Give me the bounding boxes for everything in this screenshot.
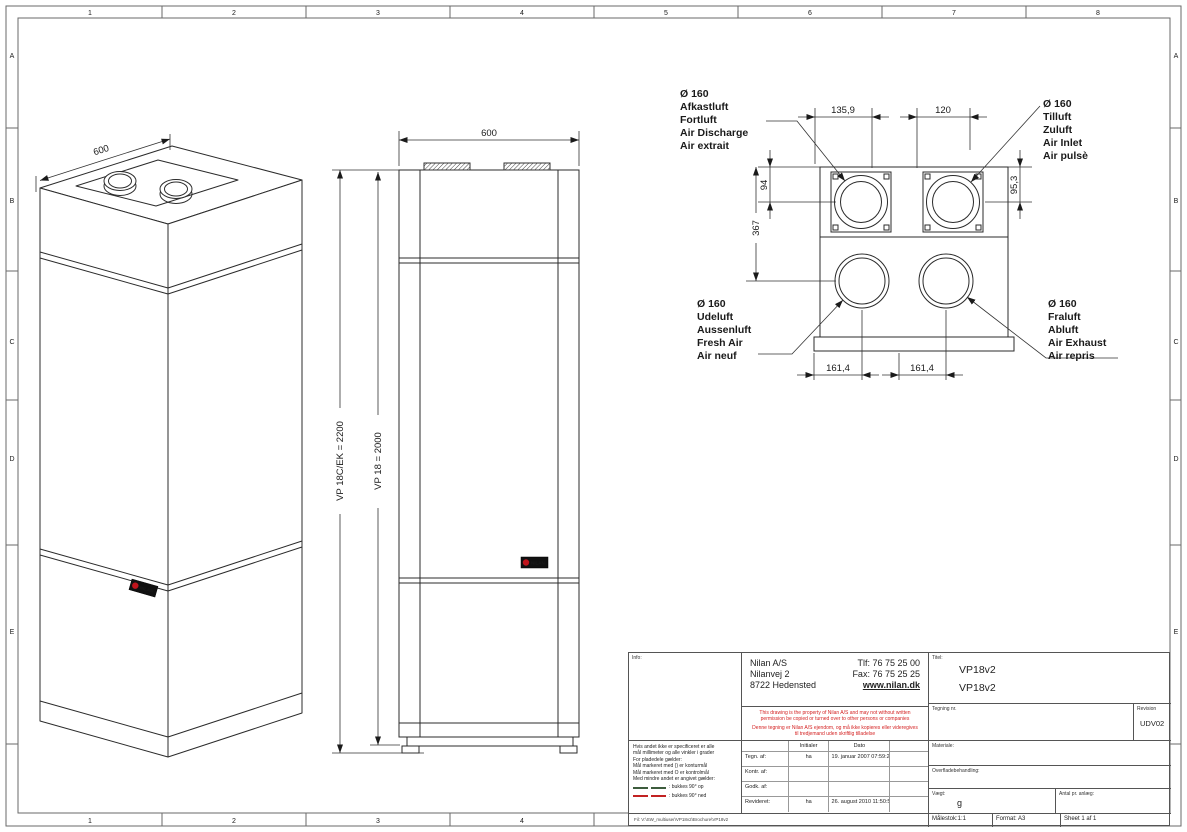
port-label-line: Afkastluft [680, 101, 729, 113]
front-width-dim-text: 600 [481, 128, 497, 139]
title-block: Info: Nilan A/S Nilanvej 2 8722 Hedenste… [628, 652, 1170, 826]
table-row: Kontr. af: [742, 767, 928, 782]
disclaimer-en: This drawing is the property of Nilan A/… [750, 710, 920, 722]
port-label-line: Udeluft [697, 311, 734, 323]
grid-row-label: B [1174, 198, 1179, 205]
grid-col-label: 4 [520, 818, 524, 825]
info-label: Info: [629, 653, 741, 661]
port-label-line: Fortluft [680, 114, 717, 126]
grid-row-label: A [1174, 53, 1179, 60]
overflade-cell: Overfladebehandling: [929, 766, 1171, 789]
port-label-exhaust: Ø 160 Fraluft Abluft Air Exhaust Air rep… [1048, 298, 1107, 362]
grid-col-label: 2 [232, 818, 236, 825]
row-date [829, 767, 891, 782]
row-initials [789, 782, 829, 797]
title-line2: VP18v2 [959, 682, 996, 694]
port-label-line: Air Inlet [1043, 137, 1083, 149]
row-label: Revideret: [742, 797, 789, 812]
table-row: Revideret: ha 26. august 2010 11:50:56 [742, 797, 928, 812]
port-label-fresh: Ø 160 Udeluft Aussenluft Fresh Air Air n… [697, 298, 752, 362]
format-cell: Format: A3 [993, 814, 1061, 827]
antal-cell: Antal pr. anlæg: [1056, 789, 1171, 814]
company-website-link[interactable]: www.nilan.dk [852, 680, 920, 691]
revision-cell: Revision UDV02 [1134, 704, 1171, 741]
row-extra [890, 782, 928, 797]
table-header-dato: Dato [829, 741, 891, 752]
dim-text: 95,3 [1009, 176, 1020, 195]
port-label-line: Ø 160 [1043, 98, 1072, 110]
revision-value: UDV02 [1140, 719, 1164, 728]
company-name: Nilan A/S [750, 658, 816, 669]
port-label-line: Aussenluft [697, 324, 752, 336]
dim-text: 135,9 [831, 105, 855, 116]
tegning-label: Tegning nr. [929, 704, 1133, 712]
company-city: 8722 Hedensted [750, 680, 816, 691]
grid-col-label: 1 [88, 10, 92, 17]
nilan-logo: NILAN [521, 557, 548, 568]
table-row: Godk. af: [742, 782, 928, 797]
port-label-inlet: Ø 160 Tilluft Zuluft Air Inlet Air pulsè [1043, 98, 1088, 162]
front-height-dim-outer-text: VP 18C/EK = 2200 [335, 421, 346, 501]
port-label-line: Ø 160 [697, 298, 726, 310]
antal-label: Antal pr. anlæg: [1056, 789, 1171, 797]
row-extra [890, 767, 928, 782]
bend-up-line-swatch [633, 787, 648, 789]
row-label: Kontr. af: [742, 767, 789, 782]
dim-text: 161,4 [910, 363, 934, 374]
port-label-line: Air extrait [680, 140, 730, 152]
port-label-line: Zuluft [1043, 124, 1073, 136]
port-label-line: Fresh Air [697, 337, 743, 349]
bend-down-legend: : bukkes 90° ned [633, 793, 739, 799]
front-collar-strip [424, 163, 470, 170]
vaegt-value: g [957, 798, 962, 808]
revision-label: Revision [1134, 704, 1171, 712]
grid-row-label: B [10, 198, 15, 205]
grid-col-label: 7 [952, 10, 956, 17]
file-path: Fil: V:\SW_multiuser\VP18v2\Brochure\VP1… [629, 814, 929, 827]
bend-up-legend: : bukkes 90° op [633, 784, 739, 790]
company-street: Nilanvej 2 [750, 669, 816, 680]
maalestok-cell: Målestok:1:1 [929, 814, 993, 827]
iso-width-dim-text: 600 [92, 143, 110, 158]
table-header-initialer: Initialer [789, 741, 829, 752]
row-initials: ha [789, 752, 829, 767]
grid-row-label: A [10, 53, 15, 60]
port-label-line: Ø 160 [680, 88, 709, 100]
row-date [829, 782, 891, 797]
front-view [399, 163, 579, 753]
front-collar-strip [504, 163, 550, 170]
materiale-cell: Materiale: [929, 741, 1171, 766]
port-label-line: Air pulsè [1043, 150, 1088, 162]
row-date: 26. august 2010 11:50:56 [829, 797, 891, 812]
note-line: Med mindre andet er angivet gælder: [633, 776, 739, 782]
front-height-dim-inner-text: VP 18 = 2000 [373, 432, 384, 490]
port-label-line: Air Discharge [680, 127, 748, 139]
grid-row-label: C [9, 339, 14, 346]
grid-row-label: E [10, 629, 15, 636]
grid-col-label: 8 [1096, 10, 1100, 17]
table-header-empty [890, 741, 928, 752]
grid-col-label: 1 [88, 818, 92, 825]
materiale-label: Materiale: [929, 741, 1171, 749]
drawing-sheet: 1 2 3 4 5 6 7 8 1 2 3 4 A B C D E A B C … [0, 0, 1187, 832]
bend-down-line-swatch [633, 795, 648, 797]
grid-col-label: 3 [376, 818, 380, 825]
row-label: Tegn. af: [742, 752, 789, 767]
port-label-line: Air neuf [697, 350, 737, 362]
tegning-cell: Tegning nr. [929, 704, 1134, 741]
vaegt-label: Vægt: [929, 789, 1055, 797]
port-label-line: Air repris [1048, 350, 1095, 362]
notes-cell: Hvis andet ikke er specificeret er alle … [629, 741, 742, 814]
company-cell: Nilan A/S Nilanvej 2 8722 Hedensted Tlf:… [742, 653, 929, 707]
grid-col-label: 3 [376, 10, 380, 17]
disclaimer-da: Denne tegning er Nilan A/S ejendom, og m… [750, 725, 920, 737]
overflade-label: Overfladebehandling: [929, 766, 1171, 774]
grid-row-label: D [1173, 456, 1178, 463]
port-label-discharge: Ø 160 Afkastluft Fortluft Air Discharge … [680, 88, 748, 152]
company-phone: Tlf: 76 75 25 00 [852, 658, 920, 669]
grid-row-label: C [1173, 339, 1178, 346]
grid-col-label: 6 [808, 10, 812, 17]
grid-row-label: E [1174, 629, 1179, 636]
signature-table: Initialer Dato Tegn. af: ha 19. januar 2… [742, 741, 929, 814]
port-label-line: Tilluft [1043, 111, 1072, 123]
table-row: Tegn. af: ha 19. januar 2007 07:59:20 [742, 752, 928, 767]
grid-col-label: 2 [232, 10, 236, 17]
port-label-line: Ø 160 [1048, 298, 1077, 310]
grid-col-label: 5 [664, 10, 668, 17]
port-label-line: Air Exhaust [1048, 337, 1107, 349]
dim-text: 367 [751, 220, 762, 236]
title-line1: VP18v2 [959, 664, 996, 676]
isometric-view [40, 146, 302, 757]
company-fax: Fax: 76 75 25 25 [852, 669, 920, 680]
row-label: Godk. af: [742, 782, 789, 797]
bend-down-line-swatch [651, 795, 666, 797]
table-header-empty [742, 741, 789, 752]
bend-down-text: : bukkes 90° ned [669, 793, 706, 799]
grid-row-label: D [9, 456, 14, 463]
row-initials: ha [789, 797, 829, 812]
logo-text: NILAN [531, 561, 545, 566]
titel-cell: Titel: VP18v2 VP18v2 [929, 653, 1171, 704]
row-extra [890, 752, 928, 767]
vaegt-cell: Vægt: g [929, 789, 1056, 814]
grid-col-label: 4 [520, 10, 524, 17]
bend-up-text: : bukkes 90° op [669, 784, 704, 790]
row-initials [789, 767, 829, 782]
dim-text: 94 [759, 180, 770, 191]
port-label-line: Abluft [1048, 324, 1079, 336]
bend-up-line-swatch [651, 787, 666, 789]
titel-label: Titel: [929, 653, 1171, 661]
dim-text: 161,4 [826, 363, 850, 374]
port-label-line: Fraluft [1048, 311, 1081, 323]
row-date: 19. januar 2007 07:59:20 [829, 752, 891, 767]
info-cell: Info: [629, 653, 742, 741]
sheet-cell: Sheet 1 af 1 [1061, 814, 1171, 827]
disclaimer-cell: This drawing is the property of Nilan A/… [742, 707, 929, 741]
top-view [814, 167, 1014, 351]
row-extra [890, 797, 928, 812]
dim-text: 120 [935, 105, 951, 116]
